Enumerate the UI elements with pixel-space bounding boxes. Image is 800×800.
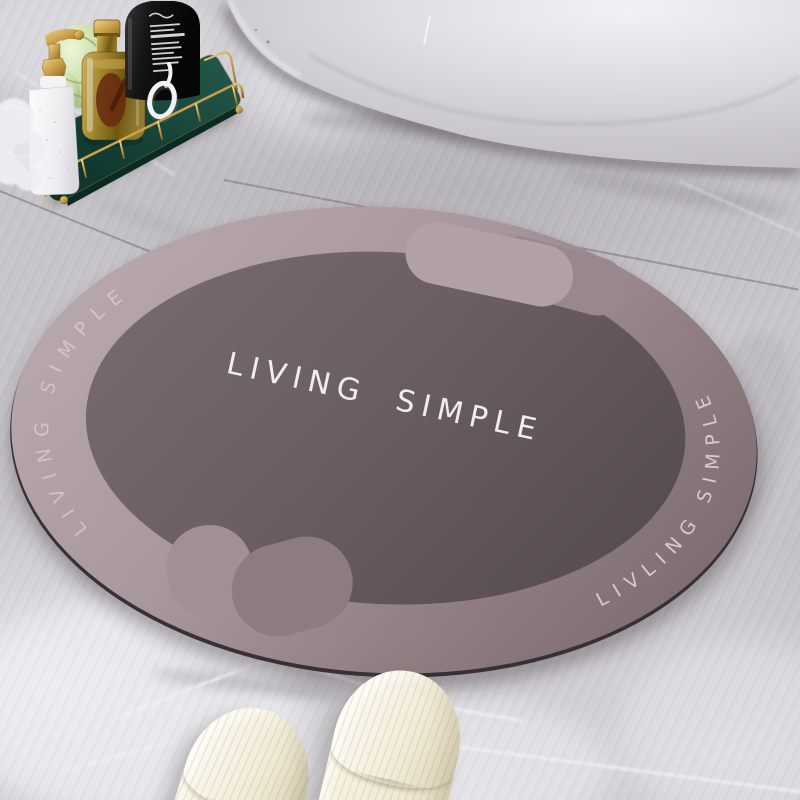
slipper-strap-seam (329, 766, 445, 800)
slipper-strap-seam (179, 790, 292, 800)
bathroom-scene: LIVING SIMPLE LIVLING SIMPLE LIVING SIMP… (0, 0, 800, 800)
